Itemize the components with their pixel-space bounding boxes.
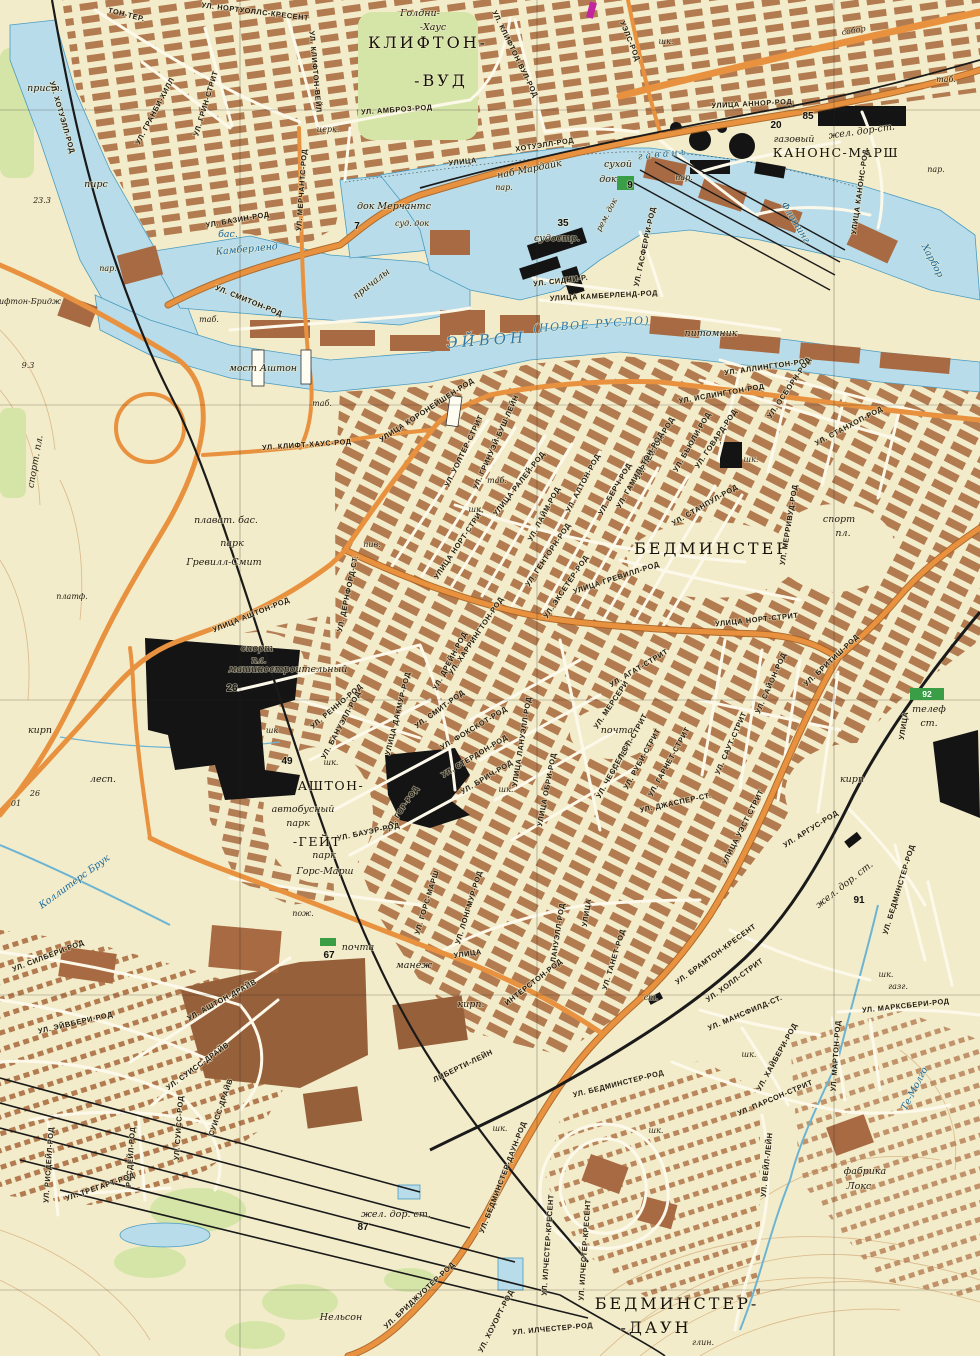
- map-label: шк.: [499, 785, 514, 794]
- map-label: 9: [627, 180, 633, 191]
- map-label: шк.: [744, 455, 759, 464]
- post-office-badge: [320, 938, 336, 946]
- map-label: пар.: [495, 183, 513, 192]
- map-label: Голдни-: [399, 8, 440, 19]
- map-label: питомник: [685, 328, 738, 339]
- map-label: 01: [11, 799, 21, 808]
- map-label: 49: [281, 756, 293, 767]
- map-label: лесп.: [90, 774, 116, 785]
- map-label: док: [599, 174, 617, 185]
- map-label: КАНОНС-МАРШ: [773, 145, 899, 160]
- map-label: машиностроительный: [229, 664, 348, 675]
- map-label: церк.: [317, 125, 340, 134]
- map-label: суд. док: [395, 219, 429, 228]
- map-label: телеф: [912, 704, 946, 715]
- map-label: пар.: [927, 165, 945, 174]
- map-label: шк.: [324, 758, 339, 767]
- map-label: КЛИФТОН-: [368, 33, 488, 52]
- map-label: АШТОН-: [298, 778, 364, 793]
- map-label: кирп: [28, 725, 52, 736]
- map-label: парк: [312, 850, 336, 861]
- map-label: 91: [853, 895, 865, 906]
- map-label: бас.: [218, 229, 238, 240]
- map-label: платф.: [56, 592, 87, 601]
- map-label: -ВУД: [414, 71, 468, 90]
- map-label: плават. бас.: [194, 515, 258, 526]
- map-label: пар.: [99, 264, 117, 273]
- map-label: 7: [354, 221, 360, 232]
- map-label: 26: [226, 683, 238, 694]
- map-label: 35: [557, 218, 569, 229]
- map-label: пож.: [292, 909, 314, 918]
- map-label: -ГЕЙТ: [293, 833, 341, 849]
- map-label: пар.: [675, 173, 693, 182]
- map-label: 9.3: [22, 361, 35, 370]
- map-label: 92: [922, 689, 932, 699]
- map-label: -Хаус: [420, 22, 447, 33]
- map-label: таб.: [936, 75, 956, 84]
- map-label: пирс: [84, 179, 108, 190]
- map-label: 67: [323, 950, 335, 961]
- map-label: 20: [770, 120, 782, 131]
- map-label: таб.: [199, 315, 219, 324]
- map-label: газовый: [774, 134, 815, 145]
- map-label: 26: [29, 789, 40, 798]
- map-label: сухой: [604, 159, 632, 170]
- map-label: парк: [286, 818, 310, 829]
- map-label: фабрика: [844, 1166, 887, 1177]
- map-label: Горс-Марш: [295, 866, 353, 877]
- map-label: ст.: [920, 718, 937, 729]
- map-label: Гревилл-Смит: [185, 557, 261, 568]
- map-sheet: УЛ. НОРТУОЛЛС-КРЕСЕНТТОН-ТЕР.Голдни--Хау…: [0, 0, 980, 1356]
- map-label: кирп.: [457, 999, 484, 1010]
- map-label: шк.: [879, 970, 894, 979]
- map-label: шк.: [659, 37, 674, 46]
- map-label: пл.: [835, 528, 850, 539]
- map-label: глин.: [692, 1338, 714, 1347]
- map-canvas: УЛ. НОРТУОЛЛС-КРЕСЕНТТОН-ТЕР.Голдни--Хау…: [0, 0, 980, 1356]
- map-label: 87: [357, 1222, 369, 1233]
- map-label: жел. дор. ст.: [361, 1209, 431, 1220]
- map-label: 23.3: [32, 196, 51, 205]
- map-label: -ДАУН: [620, 1318, 691, 1337]
- map-label: спорт: [241, 643, 273, 654]
- map-label: судостр.: [534, 233, 580, 244]
- map-label: таб.: [487, 476, 507, 485]
- map-label: шк: [266, 726, 279, 735]
- map-label: газг.: [888, 982, 908, 991]
- map-label: ифтон-Бридж: [0, 297, 61, 306]
- map-label: Локс: [846, 1181, 872, 1192]
- map-label: шк.: [742, 1050, 757, 1059]
- map-label: док Мерчантс: [357, 201, 432, 212]
- map-label: манеж: [396, 960, 432, 971]
- map-label: кирп: [840, 774, 864, 785]
- map-label: шк.: [493, 1124, 508, 1133]
- map-label: мост Аштон: [229, 363, 297, 374]
- map-label: шк.: [649, 1126, 664, 1135]
- map-label: пив.: [363, 540, 381, 549]
- gasholder: [729, 133, 755, 159]
- map-label: ст.: [644, 993, 659, 1002]
- map-label: БЕДМИНСТЕР: [634, 539, 790, 558]
- map-label: шк.: [469, 505, 484, 514]
- map-label: Нельсон: [319, 1312, 362, 1323]
- map-label: почта: [342, 942, 375, 953]
- map-label: автобусный: [272, 804, 335, 815]
- map-label: парк: [220, 538, 244, 549]
- map-label: 85: [802, 111, 814, 122]
- map-label: спорт: [823, 514, 855, 525]
- map-label: БЕДМИНСТЕР-: [595, 1294, 760, 1313]
- map-label: таб.: [312, 399, 332, 408]
